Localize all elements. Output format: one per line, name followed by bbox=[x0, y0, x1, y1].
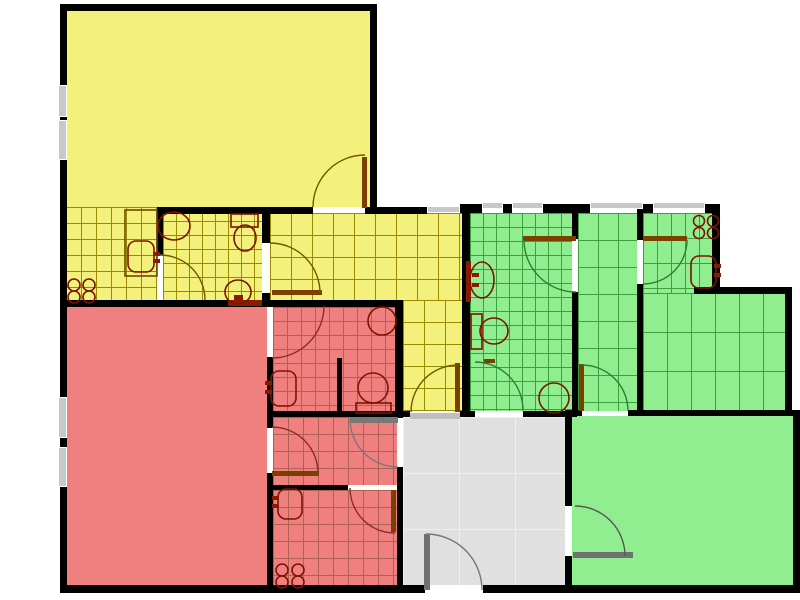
window-icon bbox=[58, 447, 67, 487]
room-green-bathroom bbox=[470, 213, 572, 411]
room-red-bathroom bbox=[273, 307, 395, 411]
wall bbox=[60, 487, 67, 592]
wall bbox=[694, 287, 792, 294]
window-icon bbox=[590, 202, 643, 209]
wall bbox=[262, 207, 270, 243]
wall bbox=[157, 207, 313, 214]
wall bbox=[793, 416, 800, 592]
door-leaf-building-entrance bbox=[424, 534, 430, 590]
window-icon bbox=[58, 85, 67, 117]
door-leaf-yellow-entry bbox=[455, 363, 460, 412]
room-yellow-living-room bbox=[66, 11, 370, 207]
window-icon bbox=[427, 206, 460, 213]
wall bbox=[395, 300, 403, 411]
room-green-kitchen bbox=[643, 213, 712, 293]
floor-plan-canvas bbox=[0, 0, 800, 600]
wall bbox=[60, 4, 67, 86]
wall bbox=[785, 287, 792, 416]
window-icon bbox=[58, 397, 67, 438]
wall bbox=[637, 284, 643, 412]
room-yellow-bathroom bbox=[163, 207, 262, 300]
wall bbox=[157, 207, 163, 255]
room-red-living-room bbox=[66, 307, 267, 585]
wall bbox=[565, 556, 572, 592]
door-leaf-green-bath-bottom bbox=[484, 359, 495, 363]
window-icon bbox=[512, 202, 543, 209]
wall bbox=[365, 207, 427, 214]
wall bbox=[60, 4, 377, 11]
wall bbox=[503, 204, 512, 213]
wall bbox=[267, 357, 273, 428]
wall bbox=[628, 410, 800, 416]
wall bbox=[572, 292, 578, 412]
room-red-kitchen bbox=[273, 490, 397, 585]
window-icon bbox=[653, 202, 705, 209]
door-leaf-red-kitchen bbox=[391, 490, 396, 532]
door-leaf-red-hall bbox=[272, 471, 319, 476]
wall bbox=[267, 473, 273, 592]
room-yellow-corridor-upper bbox=[270, 213, 462, 300]
door-leaf-red-entry bbox=[350, 417, 398, 423]
wall bbox=[60, 585, 425, 593]
wall bbox=[565, 410, 572, 506]
room-yellow-kitchen bbox=[66, 207, 157, 300]
wall bbox=[398, 411, 410, 417]
wall bbox=[370, 4, 377, 214]
door-sill-icon bbox=[410, 413, 460, 419]
room-green-room-plain bbox=[572, 416, 793, 585]
door-sill-icon bbox=[228, 300, 262, 306]
wall bbox=[643, 204, 653, 213]
wall bbox=[337, 358, 342, 411]
wall bbox=[523, 411, 577, 417]
door-sill-icon bbox=[466, 261, 471, 302]
window-icon bbox=[58, 120, 67, 160]
door-leaf-green-bath-top bbox=[523, 236, 576, 241]
door-leaf-green-kitchen bbox=[643, 236, 687, 241]
wall bbox=[267, 485, 348, 490]
room-green-room-tiled bbox=[643, 293, 785, 410]
wall bbox=[483, 585, 800, 593]
door-leaf-green-entry bbox=[573, 552, 633, 558]
wall bbox=[462, 204, 470, 412]
wall bbox=[637, 204, 643, 240]
wall bbox=[473, 204, 482, 213]
room-yellow-corridor-lower bbox=[403, 300, 462, 411]
wall bbox=[572, 204, 578, 239]
room-green-corridor bbox=[578, 213, 637, 411]
window-icon bbox=[482, 202, 503, 209]
wall bbox=[712, 204, 720, 293]
wall bbox=[397, 467, 403, 592]
door-leaf-green-corridor bbox=[579, 364, 584, 411]
door-leaf-yellow-bath bbox=[272, 290, 322, 295]
wall bbox=[60, 437, 67, 447]
wall bbox=[60, 160, 67, 398]
door-leaf-yellow-living bbox=[362, 157, 367, 208]
wall bbox=[543, 204, 590, 213]
